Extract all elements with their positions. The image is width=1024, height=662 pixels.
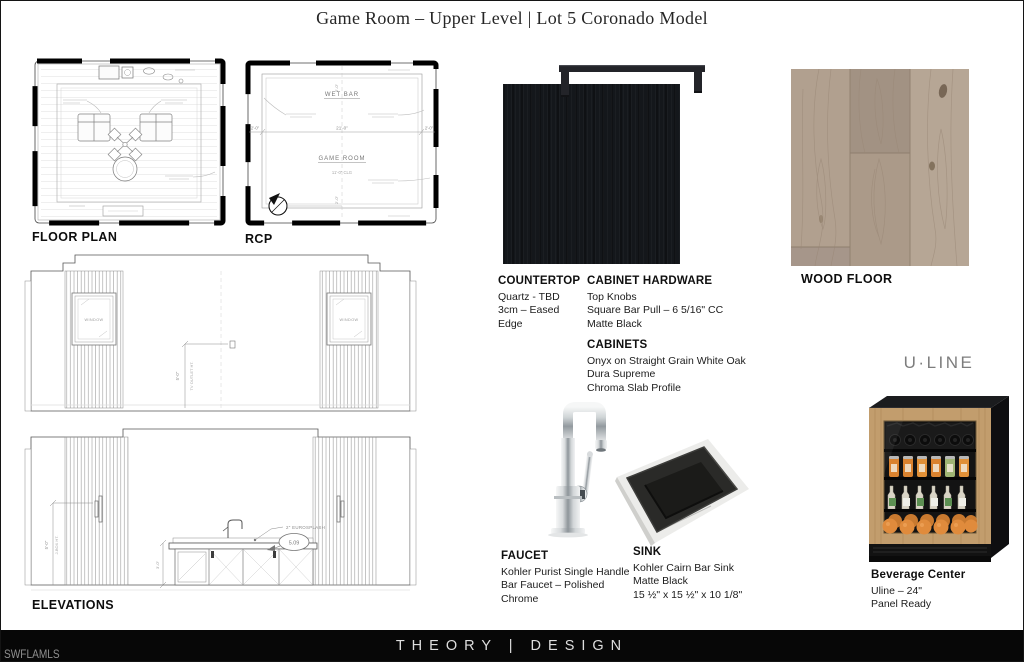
svg-text:5'-0": 5'-0"	[175, 371, 180, 380]
svg-text:WINDOW: WINDOW	[84, 318, 103, 322]
svg-text:2" EUROSPLASH: 2" EUROSPLASH	[286, 525, 325, 530]
sofa-left	[78, 114, 110, 141]
window-right: WINDOW	[327, 293, 371, 345]
elevations-label: ELEVATIONS	[32, 598, 114, 612]
wet-bar-label: WET BAR	[325, 92, 359, 98]
dim-soffit-bottom: 2'-0"	[334, 195, 339, 204]
beverage-center-spec: Beverage Center Uline – 24" Panel Ready	[871, 569, 1011, 612]
dim-right: 2'-0"	[425, 126, 434, 131]
design-board: Game Room – Upper Level | Lot 5 Coronado…	[0, 0, 1024, 662]
page-title: Game Room – Upper Level | Lot 5 Coronado…	[1, 8, 1023, 29]
spec-line: Bar Faucet – Polished Chrome	[501, 579, 636, 606]
sink-spec: SINK Kohler Cairn Bar Sink Matte Black 1…	[633, 546, 758, 602]
beverage-center-heading: Beverage Center	[871, 569, 1011, 583]
dim-center: 21'-0"	[336, 126, 348, 131]
spec-line: Matte Black	[633, 575, 758, 589]
spec-line: Dura Supreme	[587, 368, 747, 382]
dim-left: 2'-0"	[251, 126, 260, 131]
spec-line: 15 ½" x 15 ½" x 10 1/8"	[633, 589, 758, 603]
rcp-label: RCP	[245, 232, 273, 246]
svg-text:5'-0": 5'-0"	[44, 540, 49, 549]
cabinets-heading: CABINETS	[587, 339, 747, 353]
spec-line: Panel Ready	[871, 598, 1011, 612]
svg-text:5.09: 5.09	[289, 541, 300, 547]
svg-text:3'-0": 3'-0"	[155, 560, 160, 569]
faucet-image	[499, 398, 614, 540]
spec-line: Square Bar Pull – 6 5/16" CC	[587, 304, 747, 318]
spec-line: 3cm – Eased Edge	[498, 304, 586, 331]
cabinet-hardware-spec: CABINET HARDWARE Top Knobs Square Bar Pu…	[587, 275, 747, 395]
dim-soffit-top: 2'-0"	[334, 83, 339, 92]
beverage-center-image	[863, 374, 1015, 566]
spec-line: Uline – 24"	[871, 585, 1011, 599]
rcp-drawing: WET BAR 21'-0" 2'-0" 2'-0" 2'-0" 2'-0" G…	[238, 58, 445, 230]
svg-text:J-BOX HT.: J-BOX HT.	[54, 536, 59, 555]
spec-line: Kohler Purist Single Handle	[501, 566, 636, 580]
spec-line: Chroma Slab Profile	[587, 382, 747, 396]
countertop-swatch	[503, 84, 680, 264]
spec-line: Onyx on Straight Grain White Oak	[587, 355, 747, 369]
spec-line: Quartz - TBD	[498, 291, 586, 305]
brand-text: THEORY | DESIGN	[1, 638, 1023, 654]
sink-heading: SINK	[633, 546, 758, 560]
elevations-drawing: WINDOW WINDOW 5'-0" TV OUTLET HT.	[23, 253, 421, 598]
svg-text:TV OUTLET HT.: TV OUTLET HT.	[189, 361, 194, 390]
spec-line: Kohler Cairn Bar Sink	[633, 562, 758, 576]
cabinet-hardware-heading: CABINET HARDWARE	[587, 275, 747, 289]
footer-bar: THEORY | DESIGN SWFLAMLS	[1, 630, 1023, 662]
watermark: SWFLAMLS	[4, 649, 60, 661]
countertop-spec: COUNTERTOP Quartz - TBD 3cm – Eased Edge	[498, 275, 586, 331]
cabinet-pull-image	[557, 59, 709, 101]
game-room-label: GAME ROOM	[318, 156, 365, 162]
wood-floor-swatch	[791, 69, 969, 266]
sofa-right	[140, 114, 172, 141]
sink-image	[611, 429, 753, 549]
window-left: WINDOW	[72, 293, 116, 345]
media-console	[99, 66, 119, 79]
floor-plan-drawing	[25, 56, 230, 231]
faucet-spec: FAUCET Kohler Purist Single Handle Bar F…	[501, 550, 636, 606]
spec-line: Matte Black	[587, 318, 747, 332]
clg-note: 11'-0" CLG	[332, 170, 352, 175]
spec-line: Top Knobs	[587, 291, 747, 305]
floor-plan-label: FLOOR PLAN	[32, 230, 117, 244]
svg-text:WINDOW: WINDOW	[339, 318, 358, 322]
wood-floor-label: WOOD FLOOR	[801, 272, 893, 286]
countertop-heading: COUNTERTOP	[498, 275, 586, 289]
faucet-heading: FAUCET	[501, 550, 636, 564]
uline-logo: U·LINE	[869, 353, 1009, 373]
slat-door-right	[313, 437, 376, 585]
